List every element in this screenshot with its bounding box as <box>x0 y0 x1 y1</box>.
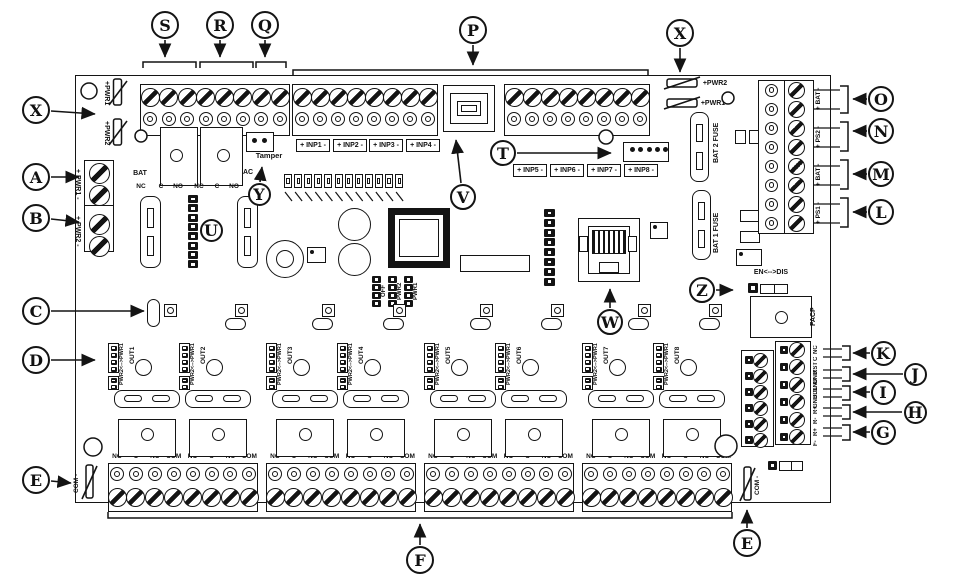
callout-marker: W <box>597 309 623 335</box>
jumper-pin <box>427 385 433 390</box>
header-pin <box>188 251 198 259</box>
wire-entry <box>765 103 778 116</box>
callout-marker: T <box>490 140 516 166</box>
wire-entry <box>584 467 598 481</box>
jumper-pin <box>372 292 381 299</box>
screw-terminal <box>215 88 234 107</box>
com-fuse-label: COM - <box>74 467 83 499</box>
screw-terminal <box>695 488 714 507</box>
callout-marker: I <box>871 380 896 405</box>
relay-indicator <box>299 428 312 441</box>
jumper-pin <box>111 353 117 358</box>
screw-terminal <box>398 488 417 507</box>
bat1-fuse-label: BAT 1 FUSE <box>713 198 723 268</box>
callout-marker: V <box>450 184 476 210</box>
wire-entry <box>268 467 282 481</box>
header-pin <box>188 195 198 203</box>
fuse-holder-slot <box>511 395 529 402</box>
relay-indicator <box>141 428 154 441</box>
pcb-diagram: + PWR1 -+ PWR2 -+PWR1+PWR2BATACNCCNONCCN… <box>0 0 953 580</box>
fuse-clip-slot <box>147 208 154 228</box>
inp8-label: + INP8 - <box>624 164 658 177</box>
jumper-pin <box>585 367 591 372</box>
jumper-shunt-divider <box>791 462 792 470</box>
status-led <box>284 174 292 188</box>
screw-terminal <box>89 214 110 235</box>
relay-indicator <box>217 149 230 162</box>
pwr2-fuse-label: +PWR2 <box>699 79 731 88</box>
screw-terminal <box>523 88 542 107</box>
relay-indicator <box>615 428 628 441</box>
pwr2-fuse-label: +PWR2 <box>100 119 110 147</box>
connector-pin <box>262 138 267 143</box>
header-pin <box>780 416 788 424</box>
output-led <box>638 304 651 317</box>
jumper-pin <box>427 360 433 365</box>
inp5-label: + INP5 - <box>513 164 547 177</box>
screw-terminal <box>537 488 556 507</box>
relay-contact-label: NO <box>226 183 242 191</box>
screw-terminal <box>419 88 438 107</box>
jumper-pin <box>269 346 275 351</box>
header-pin <box>188 223 198 231</box>
output-led <box>709 304 722 317</box>
fuse-holder-slot <box>353 395 371 402</box>
callout-marker: L <box>868 199 894 225</box>
screw-terminal <box>108 488 127 507</box>
dc-output-label: + PS2 - <box>816 121 826 153</box>
bracket <box>842 367 850 381</box>
wire-entry <box>483 467 497 481</box>
component-body <box>460 255 530 272</box>
jumper-pin <box>388 276 397 283</box>
screw-terminal <box>788 196 805 213</box>
wire-entry <box>525 112 539 126</box>
wire-entry <box>306 467 320 481</box>
header-pin <box>780 346 788 354</box>
header-pin <box>188 242 198 250</box>
capacitor <box>338 243 371 276</box>
screw-terminal <box>788 139 805 156</box>
component-body <box>312 318 333 330</box>
wire-entry <box>143 112 157 126</box>
component-body <box>735 130 746 144</box>
pwr-select-label: PWR1 <box>413 276 421 307</box>
ethernet-jack-tab <box>628 236 637 252</box>
board-hole <box>293 359 310 376</box>
jumper-pin <box>498 360 504 365</box>
wire-entry <box>385 112 399 126</box>
tamper-label: Tamper <box>250 151 288 160</box>
wire-entry <box>199 112 213 126</box>
output-led <box>393 304 406 317</box>
header-pin <box>544 238 555 246</box>
jumper-pin <box>182 367 188 372</box>
screw-terminal <box>505 88 524 107</box>
fuse-clip <box>237 196 258 268</box>
wire-entry <box>325 467 339 481</box>
component-body <box>225 318 246 330</box>
wire-entry <box>367 112 381 126</box>
jumper-pin <box>768 461 777 470</box>
screw-terminal <box>753 369 768 384</box>
jumper-pin <box>372 284 381 291</box>
jumper-pin <box>388 284 397 291</box>
jumper-pin <box>656 360 662 365</box>
callout-marker: M <box>868 161 894 187</box>
screw-terminal <box>383 88 402 107</box>
screw-terminal <box>341 488 360 507</box>
relay-contact-label: C <box>153 183 169 191</box>
relay-contact-label: NO <box>170 183 186 191</box>
pwr1-fuse-label: +PWR1 <box>697 99 729 108</box>
fuse-clip <box>692 190 711 260</box>
jumper-pin <box>111 346 117 351</box>
inp4-label: + INP4 - <box>406 139 440 152</box>
component-body <box>740 210 760 222</box>
callout-marker: J <box>904 363 927 386</box>
dc-output-terminal-block <box>758 80 814 234</box>
wire-entry <box>765 179 778 192</box>
callout-marker: B <box>22 204 50 232</box>
board-hole <box>206 359 223 376</box>
bracket <box>840 122 848 151</box>
wire-entry <box>543 112 557 126</box>
wire-entry <box>110 467 124 481</box>
wire-entry <box>765 84 778 97</box>
jumper-pin <box>388 292 397 299</box>
fuse-holder-slot <box>626 395 644 402</box>
component-body <box>628 318 649 330</box>
bracket <box>840 86 848 113</box>
callout-marker: Z <box>689 277 715 303</box>
bracket <box>842 405 850 419</box>
fuse-holder-slot <box>195 395 213 402</box>
jumper-pin <box>340 346 346 351</box>
screw-terminal <box>183 488 202 507</box>
jumper-pin <box>427 346 433 351</box>
callout-marker: U <box>200 219 223 242</box>
status-led <box>385 174 393 188</box>
wire-entry <box>633 112 647 126</box>
callout-marker: P <box>459 16 487 44</box>
jumper-pin <box>585 385 591 390</box>
fuse-holder-slot <box>310 395 328 402</box>
relay-indicator <box>370 428 383 441</box>
wire-entry <box>273 112 287 126</box>
callout-marker: S <box>151 11 179 39</box>
ac-relay-label: AC <box>240 168 256 176</box>
ic-pin1-dot <box>653 225 657 229</box>
callout-marker: N <box>868 118 894 144</box>
jumper-pin <box>111 378 117 383</box>
screw-terminal <box>676 488 695 507</box>
wire-entry <box>521 467 535 481</box>
wire-entry <box>129 467 143 481</box>
screw-terminal <box>89 236 110 257</box>
header-pin <box>188 232 198 240</box>
screw-terminal <box>582 488 601 507</box>
wire-entry <box>236 112 250 126</box>
callout-marker: H <box>904 401 927 424</box>
inp7-label: + INP7 - <box>587 164 621 177</box>
screw-terminal <box>141 88 160 107</box>
tamper-connector <box>246 132 274 152</box>
jumper-pin <box>585 353 591 358</box>
callout-marker: O <box>868 86 894 112</box>
screw-terminal <box>788 82 805 99</box>
jumper-pin <box>111 385 117 390</box>
fuse-holder-slot <box>539 395 557 402</box>
relay-indicator <box>212 428 225 441</box>
screw-terminal <box>221 488 240 507</box>
bat-relay-label: BAT <box>130 169 150 177</box>
callout-marker: G <box>871 420 896 445</box>
jumper-pin <box>585 346 591 351</box>
screw-terminal <box>789 429 805 445</box>
dc-output-label: + BAT - <box>816 83 826 115</box>
status-led <box>304 174 312 188</box>
callout-marker: E <box>733 529 761 557</box>
jumper-pin <box>498 346 504 351</box>
screw-terminal <box>753 433 768 448</box>
header-pin <box>544 278 555 286</box>
jumper-pin <box>498 385 504 390</box>
screw-terminal <box>788 215 805 232</box>
pwr2-input-label: + PWR2 - <box>71 208 81 254</box>
ethernet-jack-tab <box>579 236 588 252</box>
jumper-pin <box>269 353 275 358</box>
header-pin <box>745 388 753 396</box>
toroid-coil-core <box>276 250 294 268</box>
fuse-holder-slot <box>669 395 687 402</box>
callout-marker: Q <box>251 11 279 39</box>
relay-indicator <box>170 149 183 162</box>
ethernet-jack-contacts <box>592 230 626 254</box>
status-led <box>294 174 302 188</box>
output-jumper-label: PWR2<-->PWR1 <box>120 341 128 388</box>
jumper-pin <box>748 283 758 293</box>
dc-output-label: + PS1 - <box>816 197 826 229</box>
component-body <box>541 318 562 330</box>
header-pin <box>544 209 555 217</box>
input-connector <box>623 142 669 162</box>
status-led <box>335 174 343 188</box>
wire-entry <box>403 112 417 126</box>
wire-entry <box>679 467 693 481</box>
component-body <box>147 299 160 327</box>
jumper-pin <box>585 360 591 365</box>
status-led <box>355 174 363 188</box>
bracket <box>256 62 286 68</box>
screw-terminal <box>499 488 518 507</box>
header-pin <box>188 260 198 268</box>
screw-terminal <box>89 163 110 184</box>
jumper-pin <box>656 346 662 351</box>
com-fuse-label: COM - <box>755 469 764 501</box>
usb-port-tab <box>461 105 477 112</box>
pwr1-input-label: + PWR1 - <box>71 161 81 207</box>
screw-terminal <box>753 417 768 432</box>
screw-terminal <box>202 488 221 507</box>
jumper-pin <box>269 385 275 390</box>
screw-terminal <box>789 377 805 393</box>
fuse-holder-slot <box>282 395 300 402</box>
jumper-pin <box>111 360 117 365</box>
screw-terminal <box>347 88 366 107</box>
wire-entry <box>765 198 778 211</box>
relay-contact-label: C <box>209 183 225 191</box>
fuse-clip-slot <box>698 230 705 248</box>
board-hole <box>451 359 468 376</box>
fuse-clip-slot <box>698 202 705 220</box>
fuse-holder-slot <box>124 395 142 402</box>
jumper-pin <box>498 367 504 372</box>
jumper-pin <box>269 378 275 383</box>
screw-terminal <box>424 488 443 507</box>
jumper-pin <box>656 385 662 390</box>
wire-entry <box>295 112 309 126</box>
board-hole <box>135 359 152 376</box>
screw-terminal <box>788 101 805 118</box>
fuse-clip-slot <box>147 236 154 256</box>
wire-entry <box>331 112 345 126</box>
jumper-pin <box>404 276 413 283</box>
en-dis-label: EN<-->DIS <box>740 268 802 277</box>
fuse-clip-slot <box>244 236 251 256</box>
board-hole <box>522 359 539 376</box>
wire-entry <box>313 112 327 126</box>
component-body <box>383 318 404 330</box>
jumper-pin <box>498 353 504 358</box>
bracket <box>842 346 850 360</box>
screw-terminal <box>631 88 650 107</box>
relay-indicator <box>686 428 699 441</box>
screw-terminal <box>556 488 575 507</box>
screw-terminal <box>266 488 285 507</box>
header-pin <box>544 229 555 237</box>
bracket <box>143 62 196 68</box>
wire-entry <box>507 112 521 126</box>
header-pin <box>780 398 788 406</box>
jumper-pin <box>182 346 188 351</box>
wire-entry <box>502 467 516 481</box>
wire-entry <box>167 467 181 481</box>
dc-output-label: + BAT - <box>816 159 826 191</box>
wire-entry <box>186 467 200 481</box>
jumper-pin <box>340 367 346 372</box>
capacitor <box>338 208 371 241</box>
callout-marker: Y <box>248 183 271 206</box>
fuse-clip-slot <box>696 152 703 170</box>
relay-contact-label: NC <box>191 183 207 191</box>
header-pin <box>780 433 788 441</box>
microcontroller-die <box>399 219 439 257</box>
screw-terminal <box>541 88 560 107</box>
relay-indicator <box>528 428 541 441</box>
screw-terminal <box>518 488 537 507</box>
output-jumper-label: PWR2<-->PWR1 <box>349 341 357 388</box>
callout-marker: D <box>22 346 50 374</box>
screw-terminal <box>577 88 596 107</box>
callout-marker: K <box>871 341 896 366</box>
fuse-holder-slot <box>223 395 241 402</box>
wire-entry <box>615 112 629 126</box>
board-hole <box>609 359 626 376</box>
connector-pin <box>252 138 257 143</box>
bracket <box>200 62 253 68</box>
screw-terminal <box>240 488 259 507</box>
callout-marker: F <box>406 546 434 574</box>
fuse-holder-slot <box>697 395 715 402</box>
screw-terminal <box>159 88 178 107</box>
fuse-holder-slot <box>152 395 170 402</box>
pwr1-fuse-label: +PWR1 <box>100 79 110 107</box>
facp-label: FACP <box>810 298 820 336</box>
output-jumper-label: PWR2<-->PWR1 <box>436 341 444 388</box>
header-pin <box>745 404 753 412</box>
header-pin <box>745 356 753 364</box>
screw-terminal <box>365 88 384 107</box>
screw-terminal <box>789 412 805 428</box>
relay-indicator <box>775 311 788 324</box>
fuse-clip-slot <box>696 124 703 142</box>
wire-entry <box>445 467 459 481</box>
screw-terminal <box>753 401 768 416</box>
jumper-shunt-divider <box>774 285 775 293</box>
bat2-fuse-label: BAT 2 FUSE <box>713 108 723 178</box>
wire-entry <box>603 467 617 481</box>
wire-entry <box>421 112 435 126</box>
ic-pin1-dot <box>310 250 314 254</box>
wire-entry <box>162 112 176 126</box>
header-pin <box>780 381 788 389</box>
wire-entry <box>561 112 575 126</box>
relay-indicator <box>457 428 470 441</box>
wire-entry <box>660 467 674 481</box>
jumper-pin <box>182 378 188 383</box>
jumper-pin <box>372 300 381 307</box>
jumper-pin <box>340 378 346 383</box>
connector-pin <box>647 147 652 152</box>
jumper-pin <box>427 367 433 372</box>
wire-entry <box>464 467 478 481</box>
bracket <box>842 425 850 440</box>
fuse-holder-slot <box>381 395 399 402</box>
jumper-pin <box>656 353 662 358</box>
wire-entry <box>205 467 219 481</box>
jumper-pin <box>269 367 275 372</box>
status-led <box>314 174 322 188</box>
screw-terminal <box>595 88 614 107</box>
board-hole <box>364 359 381 376</box>
wire-entry <box>363 467 377 481</box>
output-led <box>322 304 335 317</box>
bracket <box>842 386 850 400</box>
jumper-pin <box>182 360 188 365</box>
screw-terminal <box>293 88 312 107</box>
screw-terminal <box>311 88 330 107</box>
bracket <box>840 160 848 189</box>
jumper-pin <box>182 385 188 390</box>
terminal-block-divider <box>784 81 785 233</box>
inp1-label: + INP1 - <box>296 139 330 152</box>
screw-terminal <box>559 88 578 107</box>
screw-terminal <box>379 488 398 507</box>
jumper-pin <box>340 385 346 390</box>
inp3-label: + INP3 - <box>369 139 403 152</box>
output-led <box>164 304 177 317</box>
